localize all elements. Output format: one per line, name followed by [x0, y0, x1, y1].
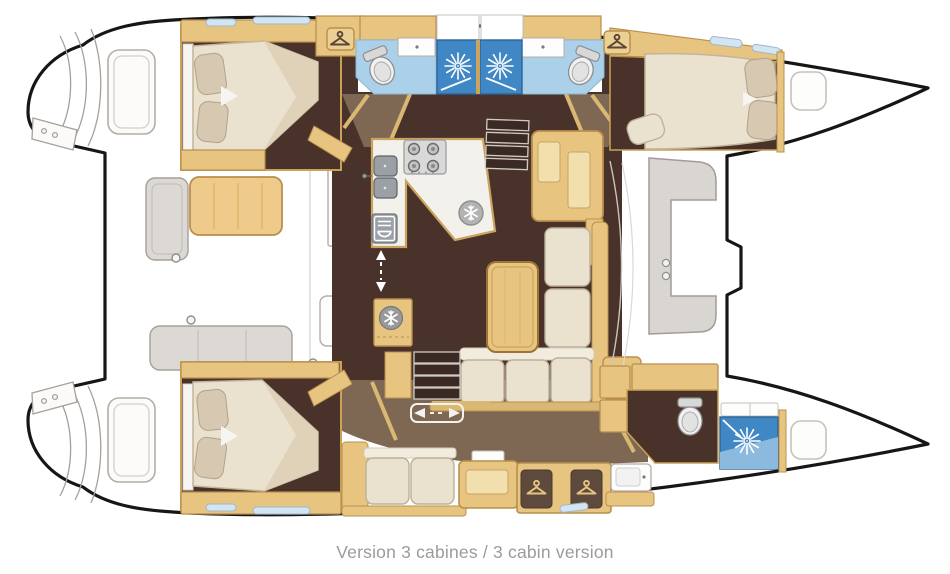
hull-window [206, 504, 236, 511]
cleat [172, 254, 180, 262]
floor-plan-figure: Version 3 cabines / 3 cabin version [0, 0, 950, 574]
toilet-icon [678, 398, 702, 435]
hull-window [206, 19, 236, 26]
sink [522, 38, 564, 57]
pillow [196, 101, 229, 144]
shower-stall [480, 40, 522, 94]
shower-stall [437, 40, 478, 94]
pillow [196, 389, 229, 432]
fridge-icon [459, 201, 483, 225]
hull-window [253, 17, 310, 24]
starboard-desk [459, 461, 518, 508]
bow-locker-hatch [791, 421, 826, 459]
wardrobe [604, 31, 630, 54]
pillow [746, 100, 780, 141]
salon-table [487, 262, 538, 352]
cockpit-table [190, 177, 282, 235]
wardrobe [327, 28, 354, 50]
plan-caption: Version 3 cabines / 3 cabin version [0, 540, 950, 564]
stove-icon [404, 140, 446, 174]
sink [398, 38, 435, 56]
starboard-companionway-stairs [385, 352, 460, 399]
oven-icon [372, 214, 397, 243]
catamaran-floor-plan [0, 0, 950, 574]
hull-window [253, 507, 310, 514]
freezer [374, 299, 412, 346]
bow-locker-hatch [791, 72, 826, 110]
double-bed [645, 54, 780, 149]
cleat [187, 316, 195, 324]
shower-stall [720, 417, 778, 469]
pillow [744, 57, 778, 98]
starboard-aft-cabin [181, 362, 352, 514]
